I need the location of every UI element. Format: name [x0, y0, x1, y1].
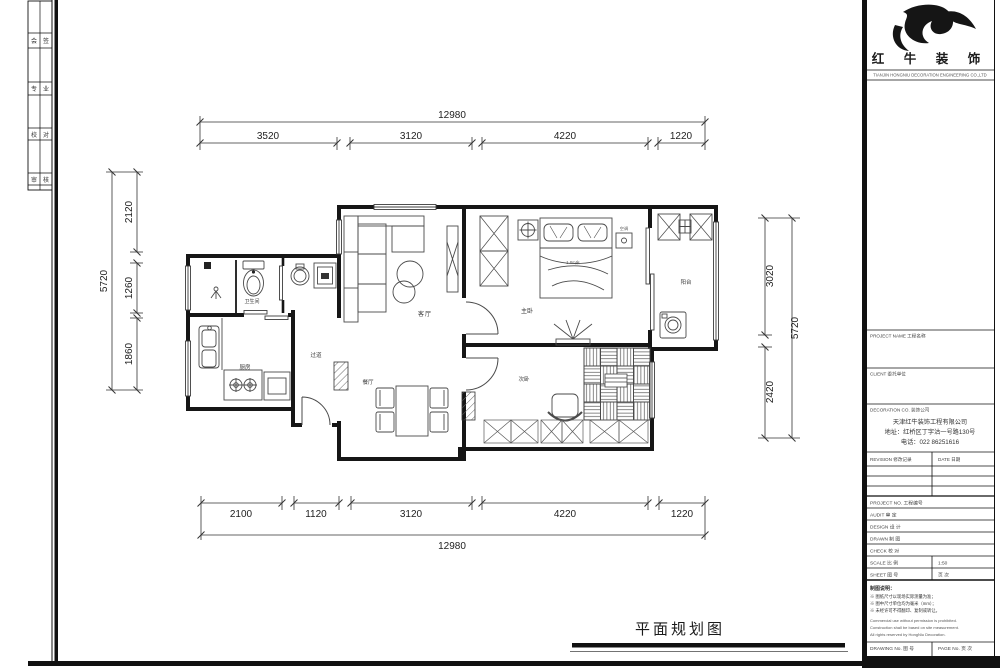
dimension-labels: 12980 3520 3120 4220 1220 2100 1120 3120…	[99, 110, 801, 552]
ceiling-light	[518, 220, 538, 240]
tb-row-label: AUDIT 审 定	[870, 512, 897, 519]
tatami-bed	[584, 348, 650, 420]
tb-company-label: DECORATION CO. 装饰公司	[870, 407, 930, 414]
drawing-sheet: 会 签 专 业 校 对 审 核	[0, 0, 1000, 668]
label-bed-size: 1.8m床	[566, 259, 580, 266]
tb-company-line: 天津红牛装饰工程有限公司	[893, 418, 967, 426]
label-bathroom: 卫生间	[244, 298, 259, 305]
dim-top-seg: 1220	[670, 131, 693, 142]
title-block: 红 牛 装 饰 TIANJIN HONGNIU DECORATION ENGIN…	[862, 0, 1000, 668]
tb-note-en: Construction shall be based on site meas…	[870, 625, 959, 630]
strip-cell: 业	[43, 85, 49, 93]
floorplan-svg: 会 签 专 业 校 对 审 核	[0, 0, 1000, 668]
nightstand	[616, 233, 632, 248]
tb-row-value: 页 次	[938, 572, 949, 579]
dim-right-total: 5720	[790, 316, 801, 339]
tb-company-line: 电话：022 86251616	[901, 438, 960, 446]
dim-top-seg: 3520	[257, 131, 280, 142]
dim-left-seg: 1860	[124, 342, 135, 365]
sheet-frame	[28, 0, 1000, 666]
brand-subtitle: TIANJIN HONGNIU DECORATION ENGINEERING C…	[873, 73, 986, 78]
tb-company-line: 地址：红桥区丁字沽一号路130号	[885, 428, 976, 436]
tb-row-label: DRAWN 制 图	[870, 536, 900, 543]
dim-left-total: 5720	[99, 269, 110, 292]
tb-row-label: PROJECT NO. 工程编号	[870, 500, 923, 507]
tb-client-label: CLIENT 委托单位	[870, 371, 906, 378]
dim-bottom-seg: 2100	[230, 509, 253, 520]
wall-tv	[554, 320, 592, 345]
strip-cell: 对	[43, 131, 49, 139]
label-kitchen: 厨房	[239, 363, 251, 371]
title-underline	[572, 643, 845, 648]
tb-note-en: All rights reserved by HongNiu Decoratio…	[870, 632, 946, 637]
dim-left-seg: 2120	[124, 200, 135, 223]
tb-page-label: PAGE No. 页 次	[938, 645, 972, 652]
label-ac-unit: 空调	[620, 225, 628, 232]
brand-logo-icon	[893, 5, 976, 51]
tb-row-label: CHECK 校 对	[870, 548, 899, 555]
strip-cell: 会	[31, 37, 37, 45]
dim-top-seg: 4220	[554, 131, 577, 142]
walls	[186, 205, 718, 461]
titleblock-bottom-bar	[862, 656, 1000, 668]
tb-drawing-no-label: DRAWING No. 图 号	[870, 646, 914, 652]
washstand	[291, 263, 336, 288]
washing-machine	[660, 312, 686, 338]
dim-bottom-seg: 1220	[671, 509, 694, 520]
dim-bottom-total: 12980	[438, 541, 466, 552]
label-living-room: 客厅	[418, 310, 432, 318]
label-dining-room: 餐厅	[362, 378, 374, 386]
tb-note-en: Commercial use without permission is pro…	[870, 618, 957, 623]
label-master-bedroom: 主卧	[521, 307, 533, 315]
tb-note-cn: ※ 图纸尺寸以现场实际测量为准；	[870, 593, 936, 600]
tb-row-value: 1:50	[938, 561, 948, 567]
label-balcony: 阳台	[680, 278, 692, 286]
dim-top-total: 12980	[438, 110, 466, 121]
tb-note-cn: ※ 未经许可不得翻印、复制或转让。	[870, 607, 940, 614]
bathroom-fixtures	[204, 261, 264, 299]
tv-cabinet	[447, 226, 458, 292]
coffee-table	[393, 261, 423, 303]
strip-cell: 专	[31, 85, 37, 93]
tb-revision-label: REVISION 修改记录	[870, 456, 912, 463]
tb-row-label: SCALE 比 例	[870, 560, 898, 567]
dim-bottom-seg: 1120	[305, 509, 327, 520]
sofa	[344, 216, 424, 322]
double-bed	[540, 218, 612, 298]
brand-name: 红 牛 装 饰	[872, 51, 988, 66]
sheet-title-block: 平面规划图	[570, 621, 848, 652]
dim-top-seg: 3120	[400, 131, 423, 142]
bedroom-cabinets	[484, 420, 648, 443]
label-second-bedroom: 次卧	[518, 375, 530, 383]
strip-cell: 签	[43, 37, 49, 45]
dim-right-seg: 3020	[765, 264, 776, 287]
tb-note-cn: ※ 图中尺寸单位均为毫米（mm）；	[870, 600, 936, 607]
strip-cell: 校	[31, 131, 37, 139]
tb-project-name-label: PROJECT NAME 工程名称	[870, 333, 926, 340]
dim-bottom-seg: 3120	[400, 509, 423, 520]
dimension-lines	[106, 116, 800, 540]
dining-table	[376, 386, 448, 436]
sheet-title: 平面规划图	[635, 621, 725, 638]
balcony-cabinet	[658, 214, 712, 240]
tb-date-label: DATE 日期	[938, 457, 961, 463]
dim-bottom-seg: 4220	[554, 509, 577, 520]
dim-right-seg: 2420	[765, 380, 776, 403]
strip-cell: 审	[31, 176, 37, 184]
tb-row-label: SHEET 图 号	[870, 573, 898, 579]
tb-notes-title: 制图说明：	[870, 585, 895, 592]
label-corridor: 过道	[310, 351, 322, 359]
wardrobe	[480, 216, 508, 286]
desk-chair	[548, 394, 582, 421]
tb-row-label: DESIGN 设 计	[870, 524, 901, 531]
dim-left-seg: 1260	[124, 276, 135, 299]
hatched-columns	[334, 362, 475, 420]
kitchen-counter	[199, 318, 290, 400]
strip-cell: 核	[43, 176, 49, 184]
